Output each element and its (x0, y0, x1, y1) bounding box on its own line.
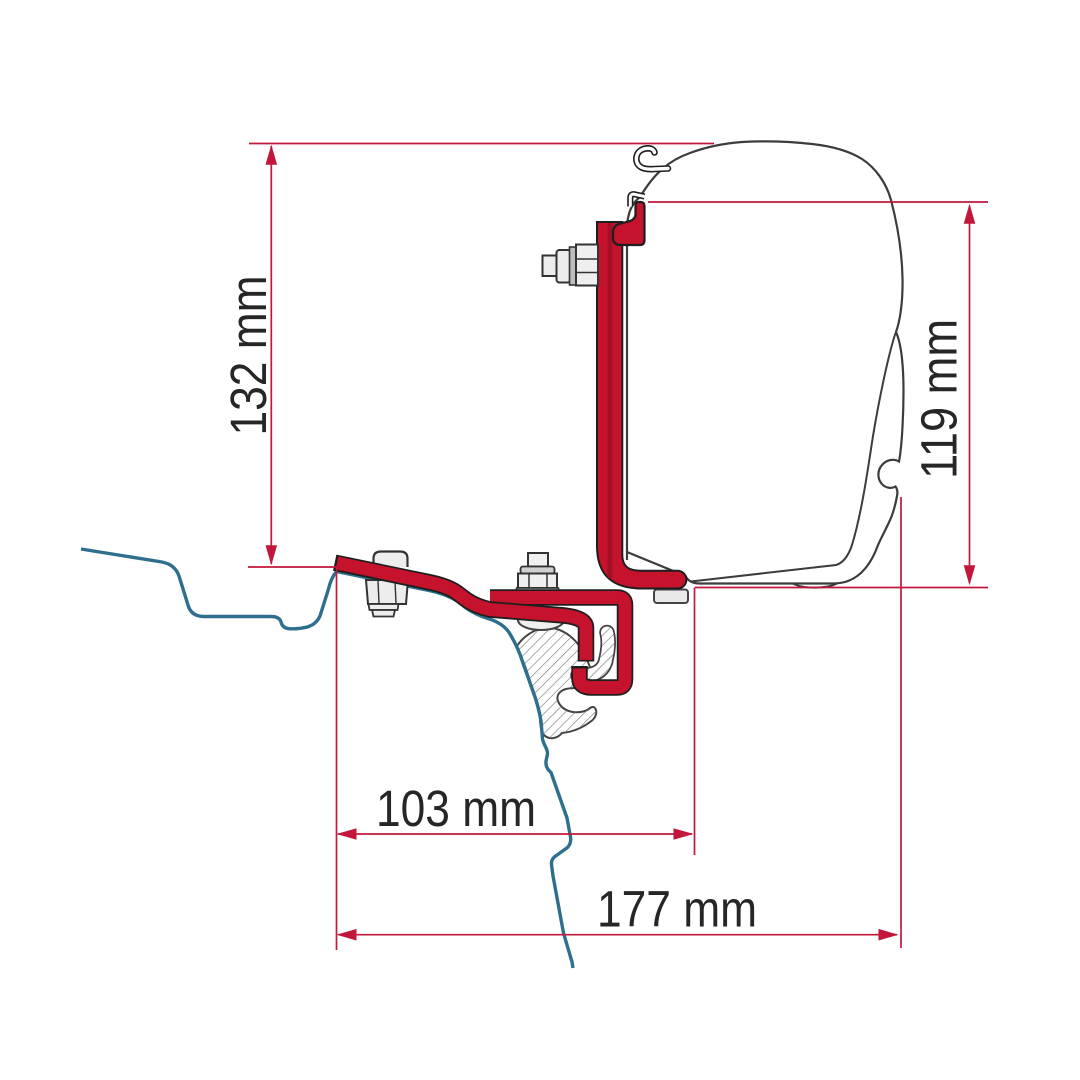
svg-text:177 mm: 177 mm (597, 881, 757, 938)
svg-text:132 mm: 132 mm (220, 276, 277, 436)
svg-text:103 mm: 103 mm (376, 780, 536, 837)
svg-text:119 mm: 119 mm (911, 319, 968, 479)
